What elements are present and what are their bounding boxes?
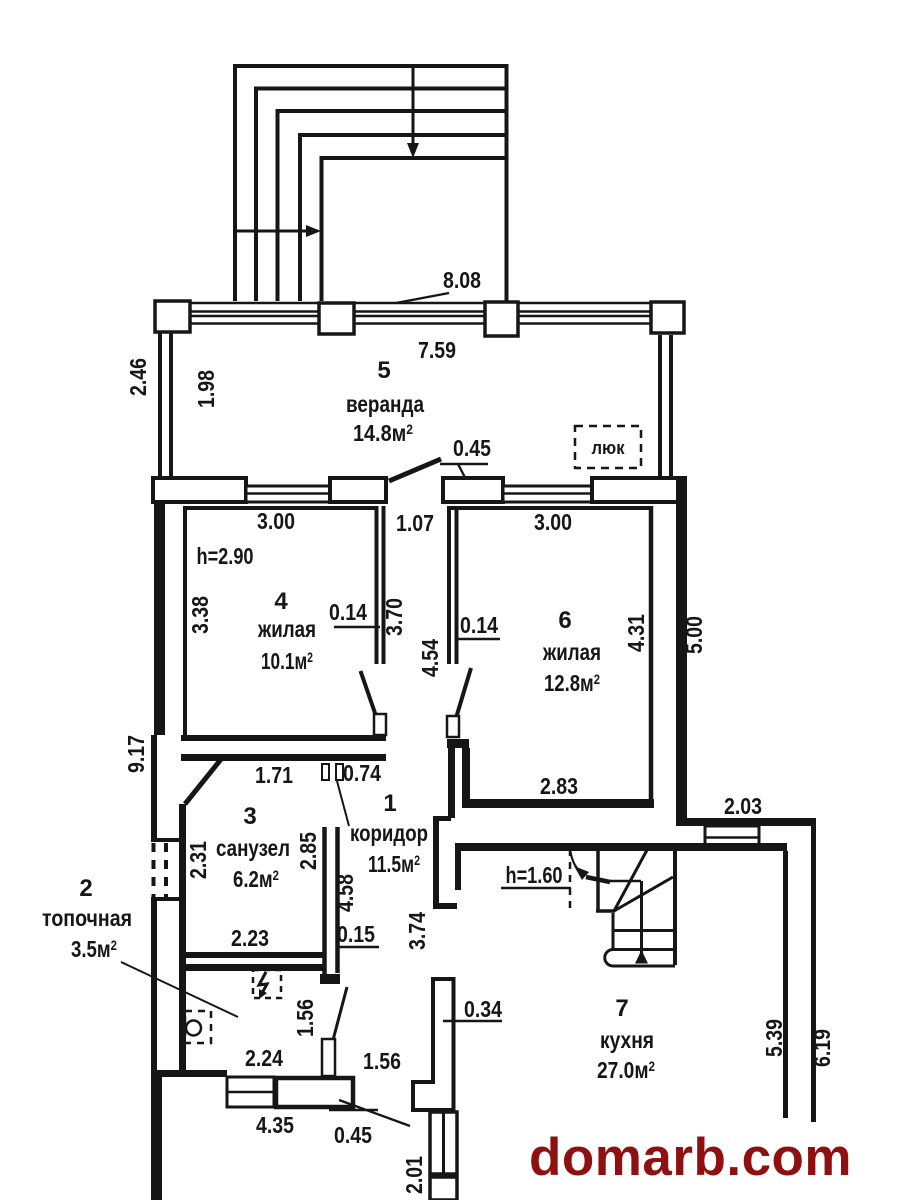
svg-text:5.39: 5.39 [761,1019,787,1057]
svg-text:6: 6 [558,607,571,634]
svg-text:4.35: 4.35 [256,1112,294,1138]
svg-text:1: 1 [383,790,396,817]
svg-text:3: 3 [243,803,256,830]
svg-text:27.0м2: 27.0м2 [597,1057,655,1083]
svg-text:11.5м2: 11.5м2 [368,851,420,877]
svg-text:1.98: 1.98 [193,370,219,408]
svg-text:3.70: 3.70 [381,598,407,636]
svg-text:5: 5 [377,357,390,384]
svg-text:веранда: веранда [346,391,424,417]
svg-text:0.45: 0.45 [453,435,491,461]
svg-text:коридор: коридор [350,820,428,846]
svg-text:топочная: топочная [42,905,132,931]
svg-text:жилая: жилая [542,639,601,665]
svg-text:4.31: 4.31 [623,614,649,652]
svg-text:3.5м2: 3.5м2 [71,936,117,962]
svg-text:12.8м2: 12.8м2 [544,670,600,696]
svg-text:4.54: 4.54 [417,639,443,677]
svg-text:2.23: 2.23 [231,925,269,951]
svg-text:5.00: 5.00 [681,616,707,654]
svg-text:8.08: 8.08 [443,267,481,293]
svg-text:2.31: 2.31 [185,841,211,879]
svg-text:санузел: санузел [216,835,290,861]
svg-text:4.58: 4.58 [332,874,358,912]
svg-text:4: 4 [274,588,288,615]
svg-text:жилая: жилая [257,616,316,642]
svg-text:1.56: 1.56 [363,1048,401,1074]
svg-text:1.56: 1.56 [292,999,318,1037]
svg-text:кухня: кухня [600,1027,654,1053]
svg-text:3.74: 3.74 [404,912,430,950]
svg-text:7: 7 [615,995,628,1022]
svg-text:2.03: 2.03 [724,793,762,819]
svg-text:10.1м2: 10.1м2 [261,648,313,674]
svg-text:3.00: 3.00 [257,508,295,534]
svg-text:1.71: 1.71 [255,762,293,788]
svg-text:0.34: 0.34 [464,996,502,1022]
svg-text:люк: люк [592,438,626,458]
svg-text:0.15: 0.15 [337,921,375,947]
svg-text:7.59: 7.59 [418,337,456,363]
svg-text:3.00: 3.00 [534,509,572,535]
svg-text:9.17: 9.17 [123,735,149,773]
svg-text:2.83: 2.83 [540,773,578,799]
svg-text:2.46: 2.46 [125,358,151,396]
svg-text:0.74: 0.74 [343,760,381,786]
svg-text:2.24: 2.24 [245,1045,283,1071]
svg-text:2.85: 2.85 [295,832,321,870]
svg-text:2: 2 [79,875,92,902]
svg-text:1.07: 1.07 [396,510,434,536]
svg-text:0.14: 0.14 [460,612,498,638]
svg-text:0.14: 0.14 [329,599,367,625]
svg-text:14.8м2: 14.8м2 [353,420,413,446]
svg-text:2.01: 2.01 [401,1156,427,1194]
svg-text:h=1.60: h=1.60 [506,862,563,888]
svg-text:3.38: 3.38 [187,596,213,634]
svg-text:6.2м2: 6.2м2 [233,866,279,892]
svg-text:0.45: 0.45 [334,1122,372,1148]
svg-text:h=2.90: h=2.90 [197,543,254,569]
svg-text:6.19: 6.19 [809,1029,835,1067]
svg-text:domarb.com: domarb.com [529,1128,852,1187]
